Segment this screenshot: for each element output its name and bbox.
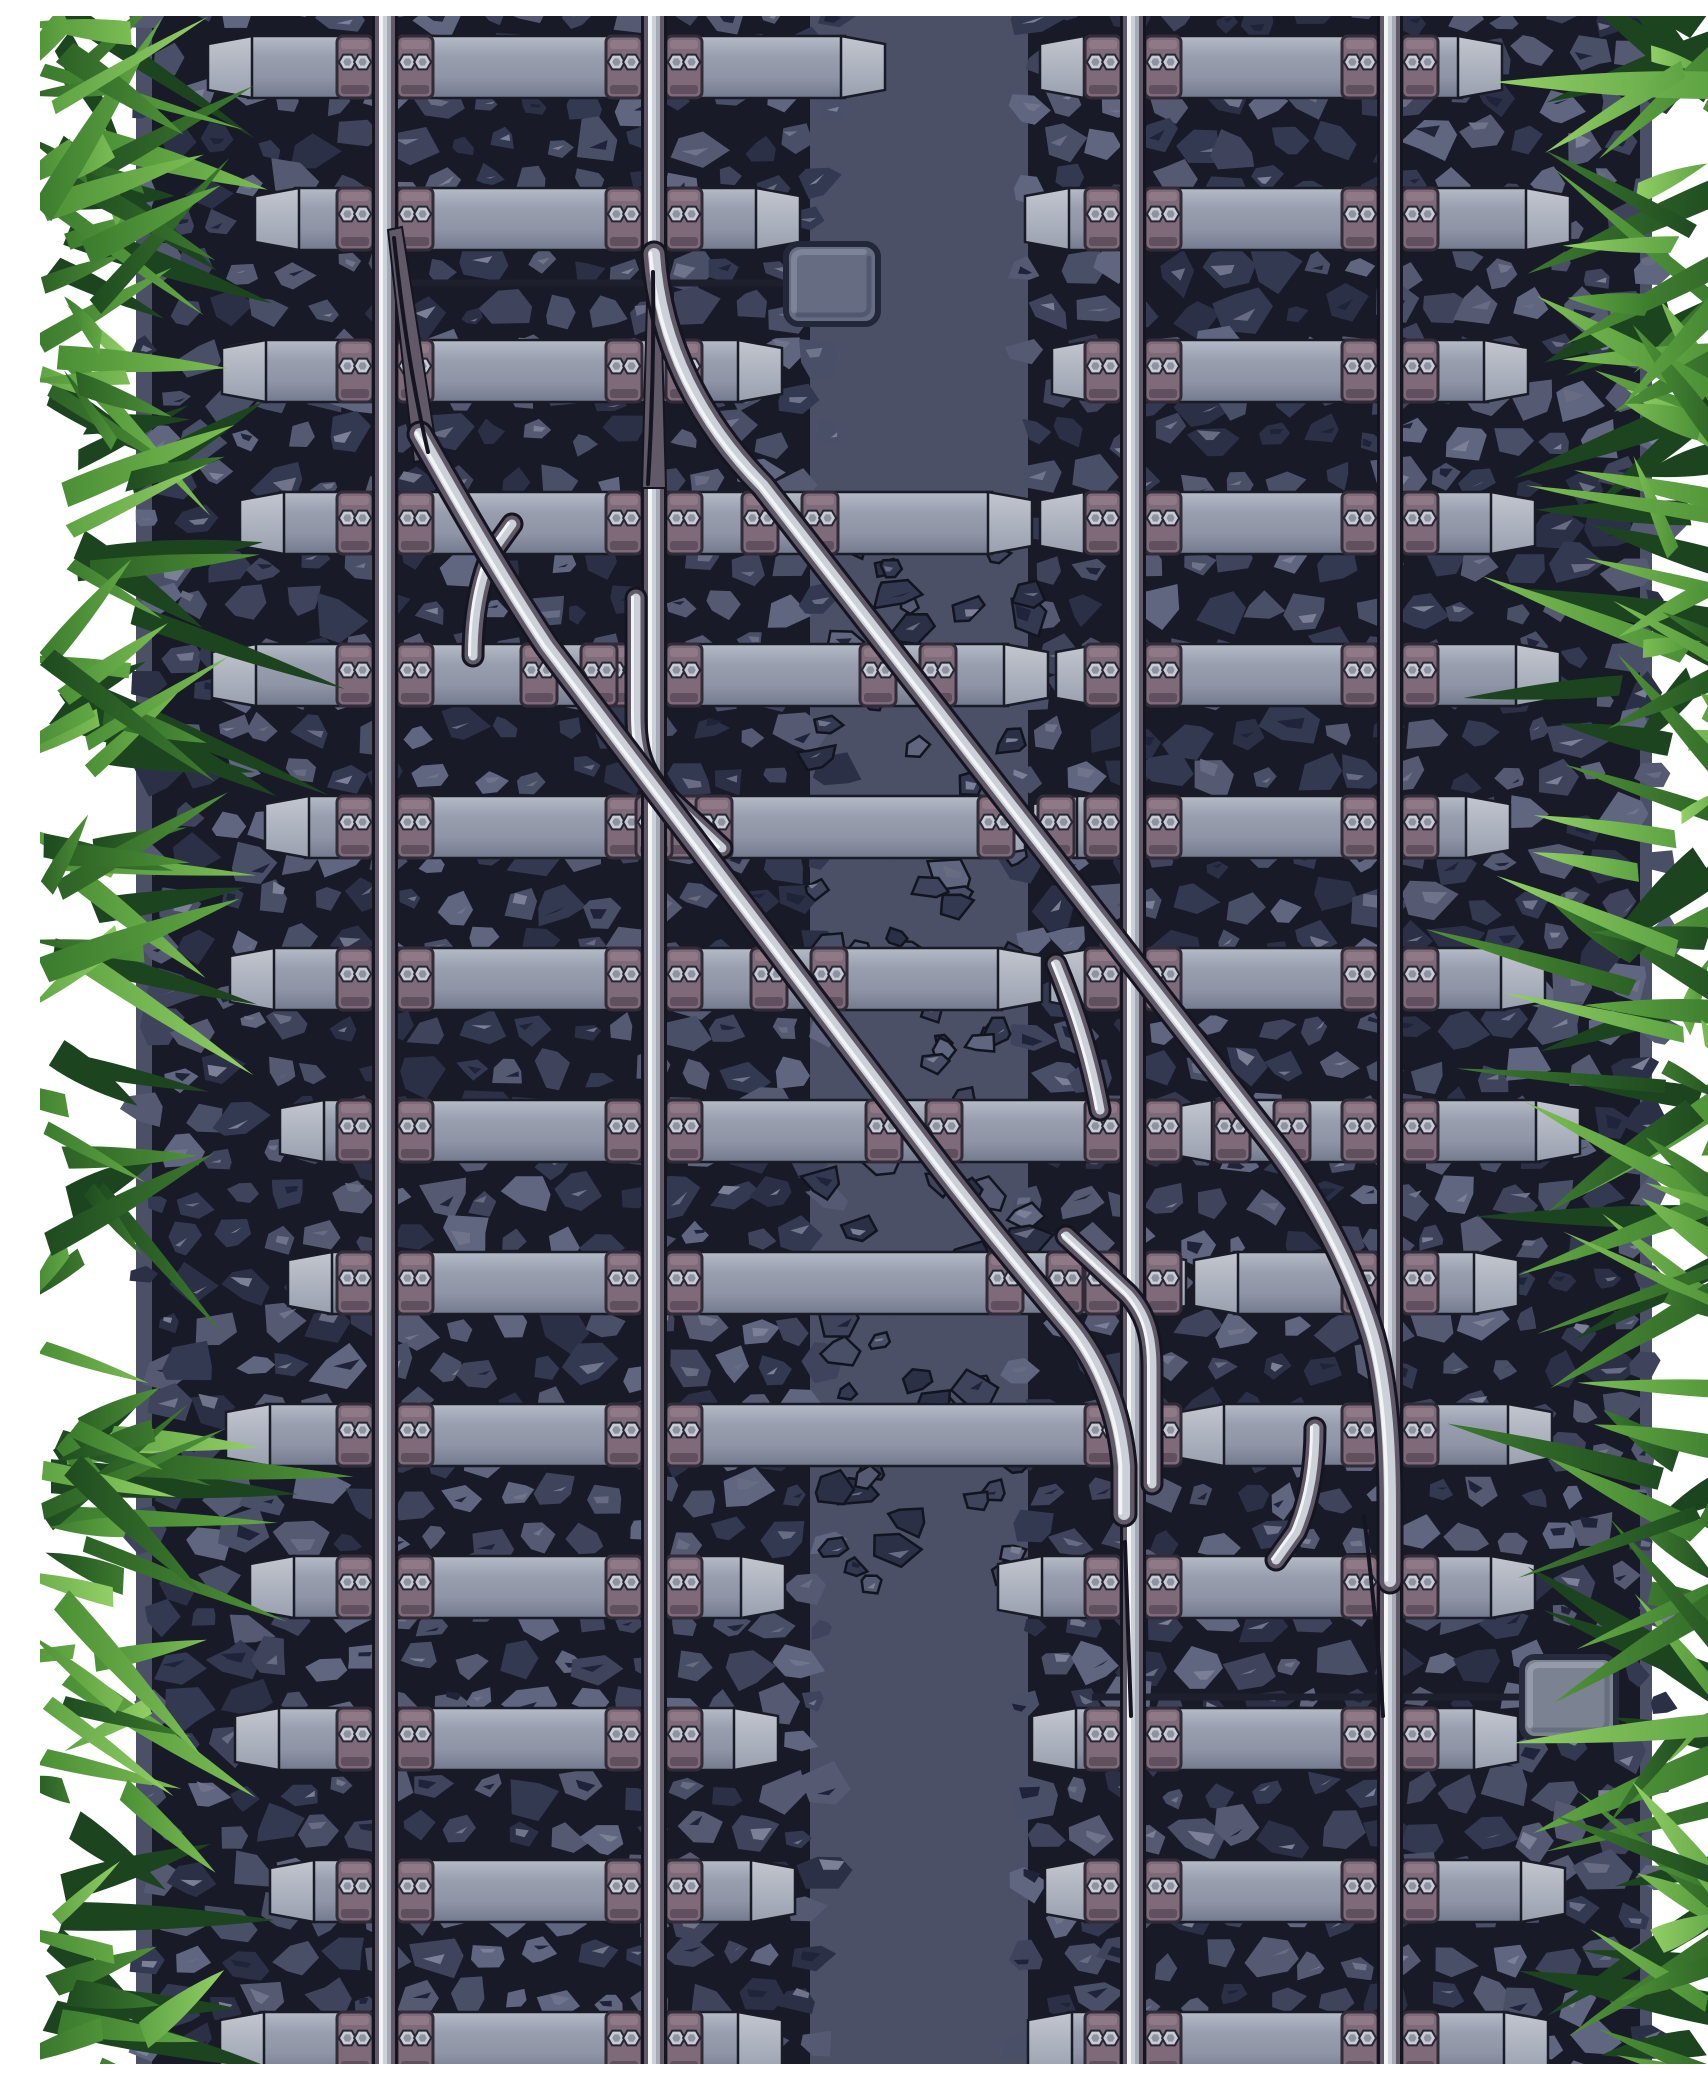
rail-baseplate: [1145, 340, 1181, 402]
rail: [1120, 16, 1146, 2064]
rail-baseplate: [1402, 1708, 1438, 1770]
rail-baseplate: [1085, 2012, 1121, 2064]
rail-baseplate: [1085, 796, 1121, 858]
rail-baseplate: [1402, 492, 1438, 554]
railway-scene-canvas: [40, 16, 1708, 2064]
rail-baseplate: [1342, 1860, 1378, 1922]
rail-baseplate: [337, 644, 373, 706]
rail-baseplate: [606, 1100, 642, 1162]
rail-baseplate: [397, 1860, 433, 1922]
rail-baseplate: [1342, 36, 1378, 98]
rail-baseplate: [1085, 1708, 1121, 1770]
rail-baseplate: [397, 948, 433, 1010]
rail-baseplate: [397, 2012, 433, 2064]
railway-crossover-illustration: [40, 16, 1708, 2064]
rail-baseplate: [666, 188, 702, 250]
rail-baseplate: [1145, 1708, 1181, 1770]
rail-baseplate: [1342, 2012, 1378, 2064]
rail-baseplate: [1085, 1860, 1121, 1922]
switch-motor-box: [786, 244, 878, 324]
rail-baseplate: [1145, 644, 1181, 706]
rail-baseplate: [666, 1252, 702, 1314]
rail-baseplate: [606, 36, 642, 98]
rail-baseplate: [666, 1860, 702, 1922]
rail: [372, 16, 398, 2064]
rail-baseplate: [606, 492, 642, 554]
rail-baseplate: [1145, 796, 1181, 858]
rail-baseplate: [666, 1556, 702, 1618]
rail-baseplate: [397, 1100, 433, 1162]
rail-baseplate: [1402, 796, 1438, 858]
rail-baseplate: [606, 340, 642, 402]
rail-baseplate: [666, 492, 702, 554]
rail-baseplate: [1402, 340, 1438, 402]
rail-baseplate: [337, 36, 373, 98]
rail-baseplate: [337, 1556, 373, 1618]
rail-baseplate: [1402, 644, 1438, 706]
rail-baseplate: [1342, 1100, 1378, 1162]
rail-baseplate: [606, 1708, 642, 1770]
rail-baseplate: [1342, 948, 1378, 1010]
rail-baseplate: [1145, 188, 1181, 250]
rail-baseplate: [1085, 188, 1121, 250]
sleeper: [208, 36, 885, 98]
rail-baseplate: [1085, 644, 1121, 706]
rail: [1377, 16, 1403, 2064]
rail-baseplate: [337, 948, 373, 1010]
rail-baseplate: [1342, 1708, 1378, 1770]
rail-baseplate: [337, 1708, 373, 1770]
rail-baseplate: [606, 948, 642, 1010]
rail-baseplate: [397, 492, 433, 554]
rail-baseplate: [1145, 1252, 1181, 1314]
rail-baseplate: [397, 1708, 433, 1770]
rail-baseplate: [397, 644, 433, 706]
sleeper: [250, 1556, 785, 1618]
rail-baseplate: [666, 644, 702, 706]
rail-baseplate: [337, 188, 373, 250]
rail-baseplate: [337, 340, 373, 402]
rail-baseplate: [606, 1860, 642, 1922]
rail-baseplate: [1402, 188, 1438, 250]
rail-baseplate: [337, 2012, 373, 2064]
rail-baseplate: [397, 796, 433, 858]
rail-baseplate: [1402, 2012, 1438, 2064]
rail-baseplate: [397, 36, 433, 98]
rail-baseplate: [1145, 1100, 1181, 1162]
rail-baseplate: [666, 36, 702, 98]
rail-baseplate: [1145, 1860, 1181, 1922]
rail-baseplate: [337, 1404, 373, 1466]
rail-baseplate: [1342, 796, 1378, 858]
rail-baseplate: [606, 2012, 642, 2064]
rail-baseplate: [337, 1252, 373, 1314]
rail-baseplate: [606, 1404, 642, 1466]
rail-baseplate: [337, 492, 373, 554]
rail-baseplate: [1342, 188, 1378, 250]
rail-baseplate: [1342, 644, 1378, 706]
rail-baseplate: [1145, 492, 1181, 554]
rail-baseplate: [397, 1404, 433, 1466]
rail-baseplate: [1402, 1860, 1438, 1922]
rail-baseplate: [1145, 36, 1181, 98]
rail-baseplate: [1342, 492, 1378, 554]
rail-baseplate: [666, 1100, 702, 1162]
rail-baseplate: [666, 948, 702, 1010]
rail-baseplate: [1085, 1556, 1121, 1618]
rail-baseplate: [666, 1404, 702, 1466]
rail-baseplate: [1402, 1100, 1438, 1162]
rail-baseplate: [606, 1252, 642, 1314]
rail-baseplate: [666, 1708, 702, 1770]
rail-baseplate: [397, 1252, 433, 1314]
rail-baseplate: [666, 2012, 702, 2064]
rail-baseplate: [1402, 1404, 1438, 1466]
rail-baseplate: [1085, 340, 1121, 402]
rail-baseplate: [606, 188, 642, 250]
rail-baseplate: [1402, 36, 1438, 98]
rail-baseplate: [1402, 1556, 1438, 1618]
rail-baseplate: [337, 1100, 373, 1162]
rail-baseplate: [1145, 1556, 1181, 1618]
rail-baseplate: [1342, 340, 1378, 402]
rail-baseplate: [1085, 492, 1121, 554]
rail-baseplate: [1085, 36, 1121, 98]
rail-baseplate: [397, 1556, 433, 1618]
rail-baseplate: [337, 796, 373, 858]
rail-baseplate: [337, 1860, 373, 1922]
rail-baseplate: [606, 1556, 642, 1618]
rail-baseplate: [1145, 2012, 1181, 2064]
rail-baseplate: [1402, 948, 1438, 1010]
rail-baseplate: [1402, 1252, 1438, 1314]
